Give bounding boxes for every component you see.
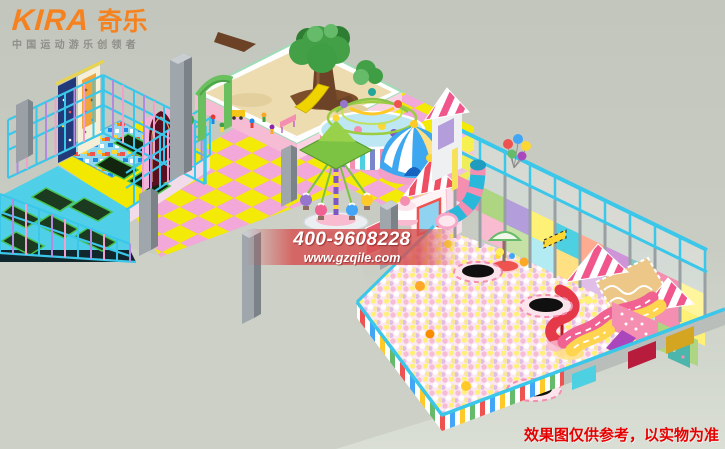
brand-name-cn: 奇乐 xyxy=(97,10,147,35)
gray-wall-slab xyxy=(16,99,33,163)
support-pillar xyxy=(281,145,297,207)
support-pillar xyxy=(139,188,158,256)
website-url: www.gzqile.com xyxy=(304,251,401,265)
round-trampoline xyxy=(454,262,502,282)
brand-tagline: 中国运动游乐创领者 xyxy=(12,41,182,51)
brand-logo: KIRA 奇乐 中国运动游乐创领者 xyxy=(12,6,182,51)
round-trampoline xyxy=(520,295,572,317)
log-bench xyxy=(214,32,256,52)
playground-render xyxy=(0,0,725,449)
phone-number: 400-9608228 xyxy=(293,229,411,251)
render-canvas: KIRA 奇乐 中国运动游乐创领者 400-9608228 www.gzqile… xyxy=(0,0,725,449)
brand-name-en: KIRA xyxy=(11,6,90,36)
contact-banner: 400-9608228 www.gzqile.com xyxy=(246,229,458,265)
support-pillar xyxy=(170,53,192,181)
disclaimer-text: 效果图仅供参考，以实物为准 xyxy=(524,424,719,445)
